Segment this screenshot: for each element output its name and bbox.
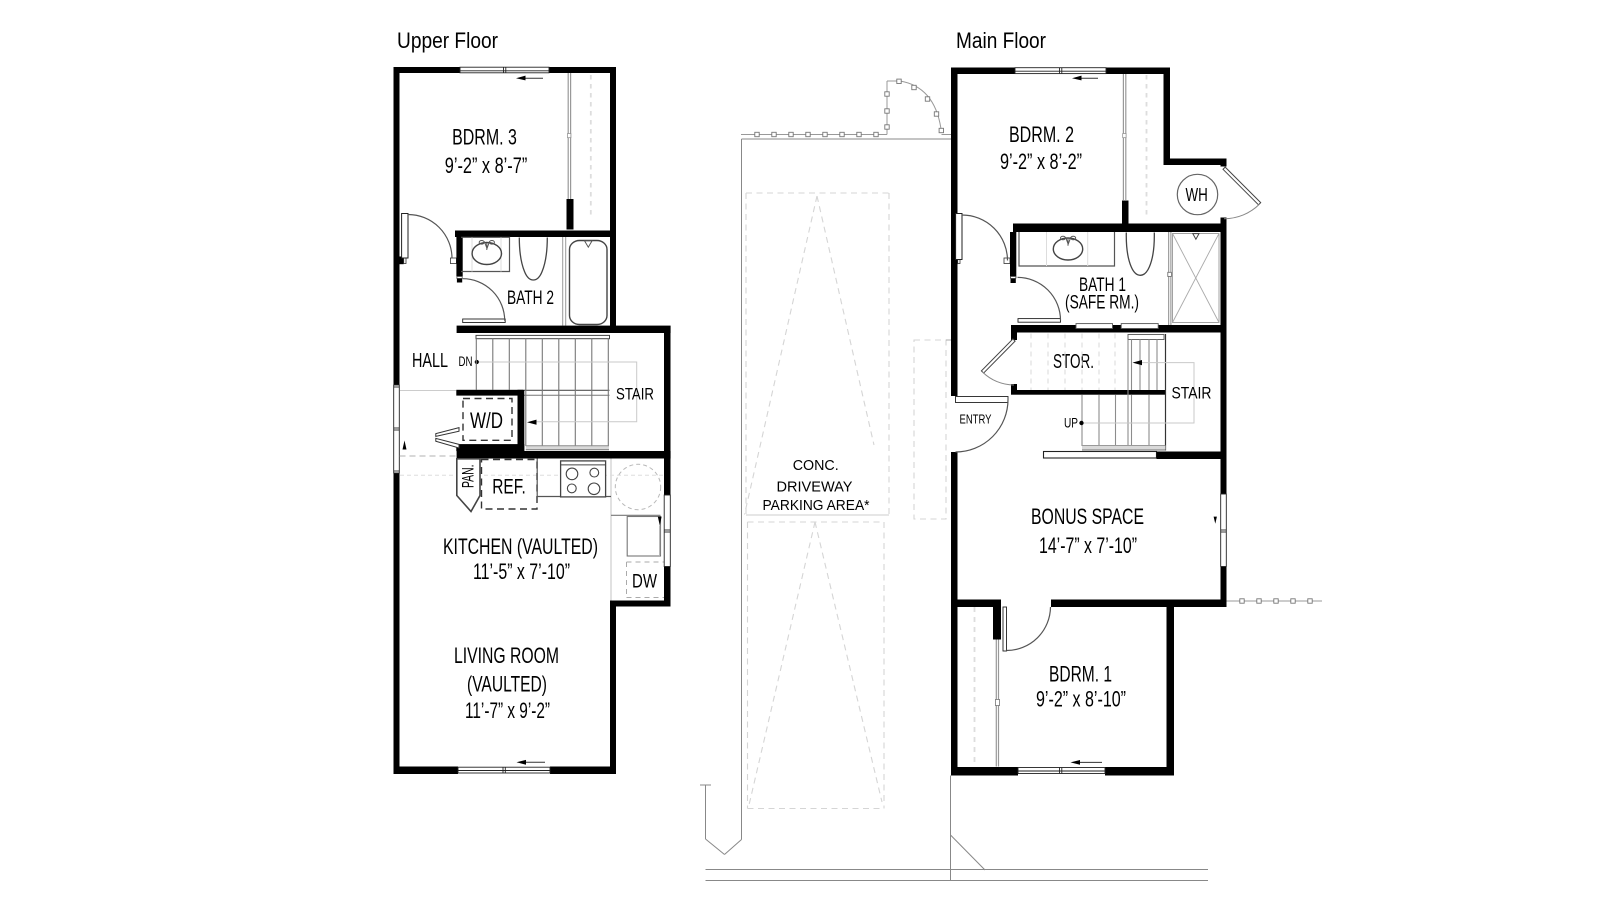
svg-text:11’-7” x 9’-2”: 11’-7” x 9’-2” [465,698,550,723]
svg-text:STAIR: STAIR [1172,384,1212,403]
svg-text:STOR.: STOR. [1053,351,1094,373]
svg-text:BONUS SPACE: BONUS SPACE [1031,504,1144,529]
svg-text:REF.: REF. [492,476,526,499]
svg-text:DN: DN [459,353,473,369]
svg-text:BDRM. 2: BDRM. 2 [1009,122,1074,147]
svg-text:BATH 2: BATH 2 [507,288,554,309]
svg-text:11’-5” x 7’-10”: 11’-5” x 7’-10” [473,559,570,584]
svg-text:Upper Floor: Upper Floor [397,28,498,53]
svg-text:UP: UP [1064,415,1078,431]
svg-text:W/D: W/D [470,408,503,433]
svg-text:KITCHEN (VAULTED): KITCHEN (VAULTED) [443,534,598,559]
svg-text:PAN.: PAN. [459,465,478,489]
svg-text:DW: DW [632,572,657,593]
svg-text:HALL: HALL [412,350,448,372]
svg-text:(VAULTED): (VAULTED) [467,672,547,697]
svg-text:(SAFE RM.): (SAFE RM.) [1065,293,1139,314]
svg-text:9’-2” x 8’-10”: 9’-2” x 8’-10” [1036,687,1126,712]
svg-text:9’-2” x 8’-2”: 9’-2” x 8’-2” [1000,149,1082,174]
svg-text:14’-7” x 7’-10”: 14’-7” x 7’-10” [1039,533,1137,558]
svg-text:BDRM. 1: BDRM. 1 [1049,662,1112,687]
svg-text:PARKING AREA*: PARKING AREA* [763,498,870,514]
svg-text:LIVING ROOM: LIVING ROOM [454,643,559,668]
svg-text:DRIVEWAY: DRIVEWAY [777,480,853,496]
svg-text:WH: WH [1186,185,1208,205]
svg-text:9’-2” x 8’-7”: 9’-2” x 8’-7” [445,153,528,178]
svg-text:STAIR: STAIR [616,385,654,404]
svg-text:BDRM. 3: BDRM. 3 [452,125,517,150]
svg-text:Main Floor: Main Floor [956,28,1046,53]
svg-text:ENTRY: ENTRY [960,412,992,427]
svg-text:CONC.: CONC. [793,458,839,474]
